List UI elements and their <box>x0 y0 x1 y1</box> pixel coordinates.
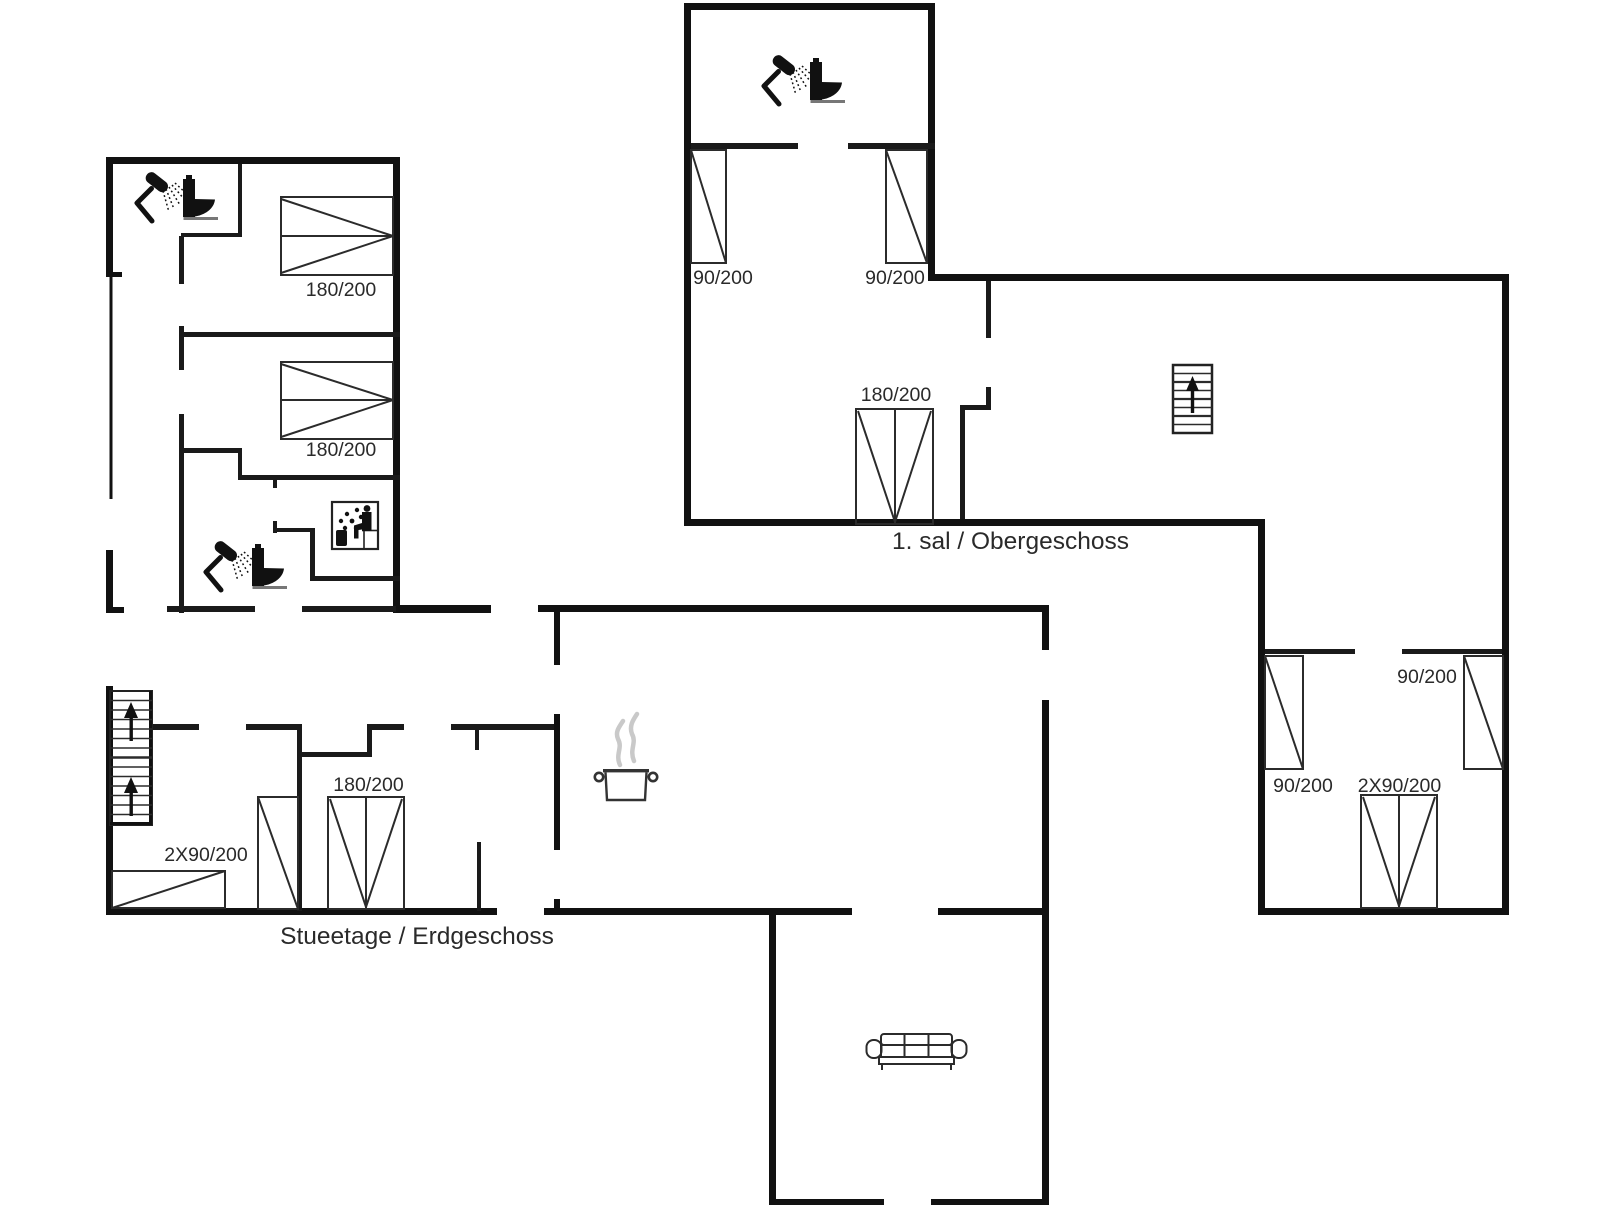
svg-text:2X90/200: 2X90/200 <box>164 844 248 866</box>
svg-text:180/200: 180/200 <box>333 774 404 796</box>
svg-text:90/200: 90/200 <box>693 267 753 289</box>
svg-text:180/200: 180/200 <box>306 279 377 301</box>
svg-text:90/200: 90/200 <box>1397 666 1457 688</box>
svg-text:180/200: 180/200 <box>861 384 932 406</box>
svg-text:2X90/200: 2X90/200 <box>1358 775 1442 797</box>
svg-text:Stueetage / Erdgeschoss: Stueetage / Erdgeschoss <box>280 923 554 950</box>
svg-text:1. sal / Obergeschoss: 1. sal / Obergeschoss <box>892 528 1129 555</box>
svg-text:90/200: 90/200 <box>865 267 925 289</box>
svg-text:90/200: 90/200 <box>1273 775 1333 797</box>
svg-text:180/200: 180/200 <box>306 439 377 461</box>
